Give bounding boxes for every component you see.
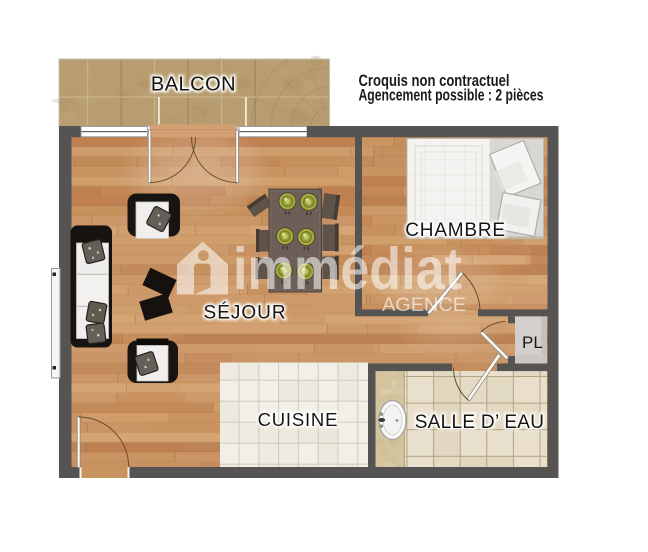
svg-text:immédiat: immédiat [233, 236, 462, 302]
svg-text:Agencement possible : 2 pièces: Agencement possible : 2 pièces [359, 86, 544, 104]
svg-text:PL: PL [522, 333, 543, 352]
svg-text:SALLE D’ EAU: SALLE D’ EAU [415, 412, 545, 433]
svg-text:SÉJOUR: SÉJOUR [204, 303, 287, 324]
svg-text:CHAMBRE: CHAMBRE [405, 220, 506, 241]
svg-text:BALCON: BALCON [151, 74, 236, 96]
svg-text:AGENCE: AGENCE [382, 294, 466, 316]
svg-text:CUISINE: CUISINE [258, 409, 339, 430]
